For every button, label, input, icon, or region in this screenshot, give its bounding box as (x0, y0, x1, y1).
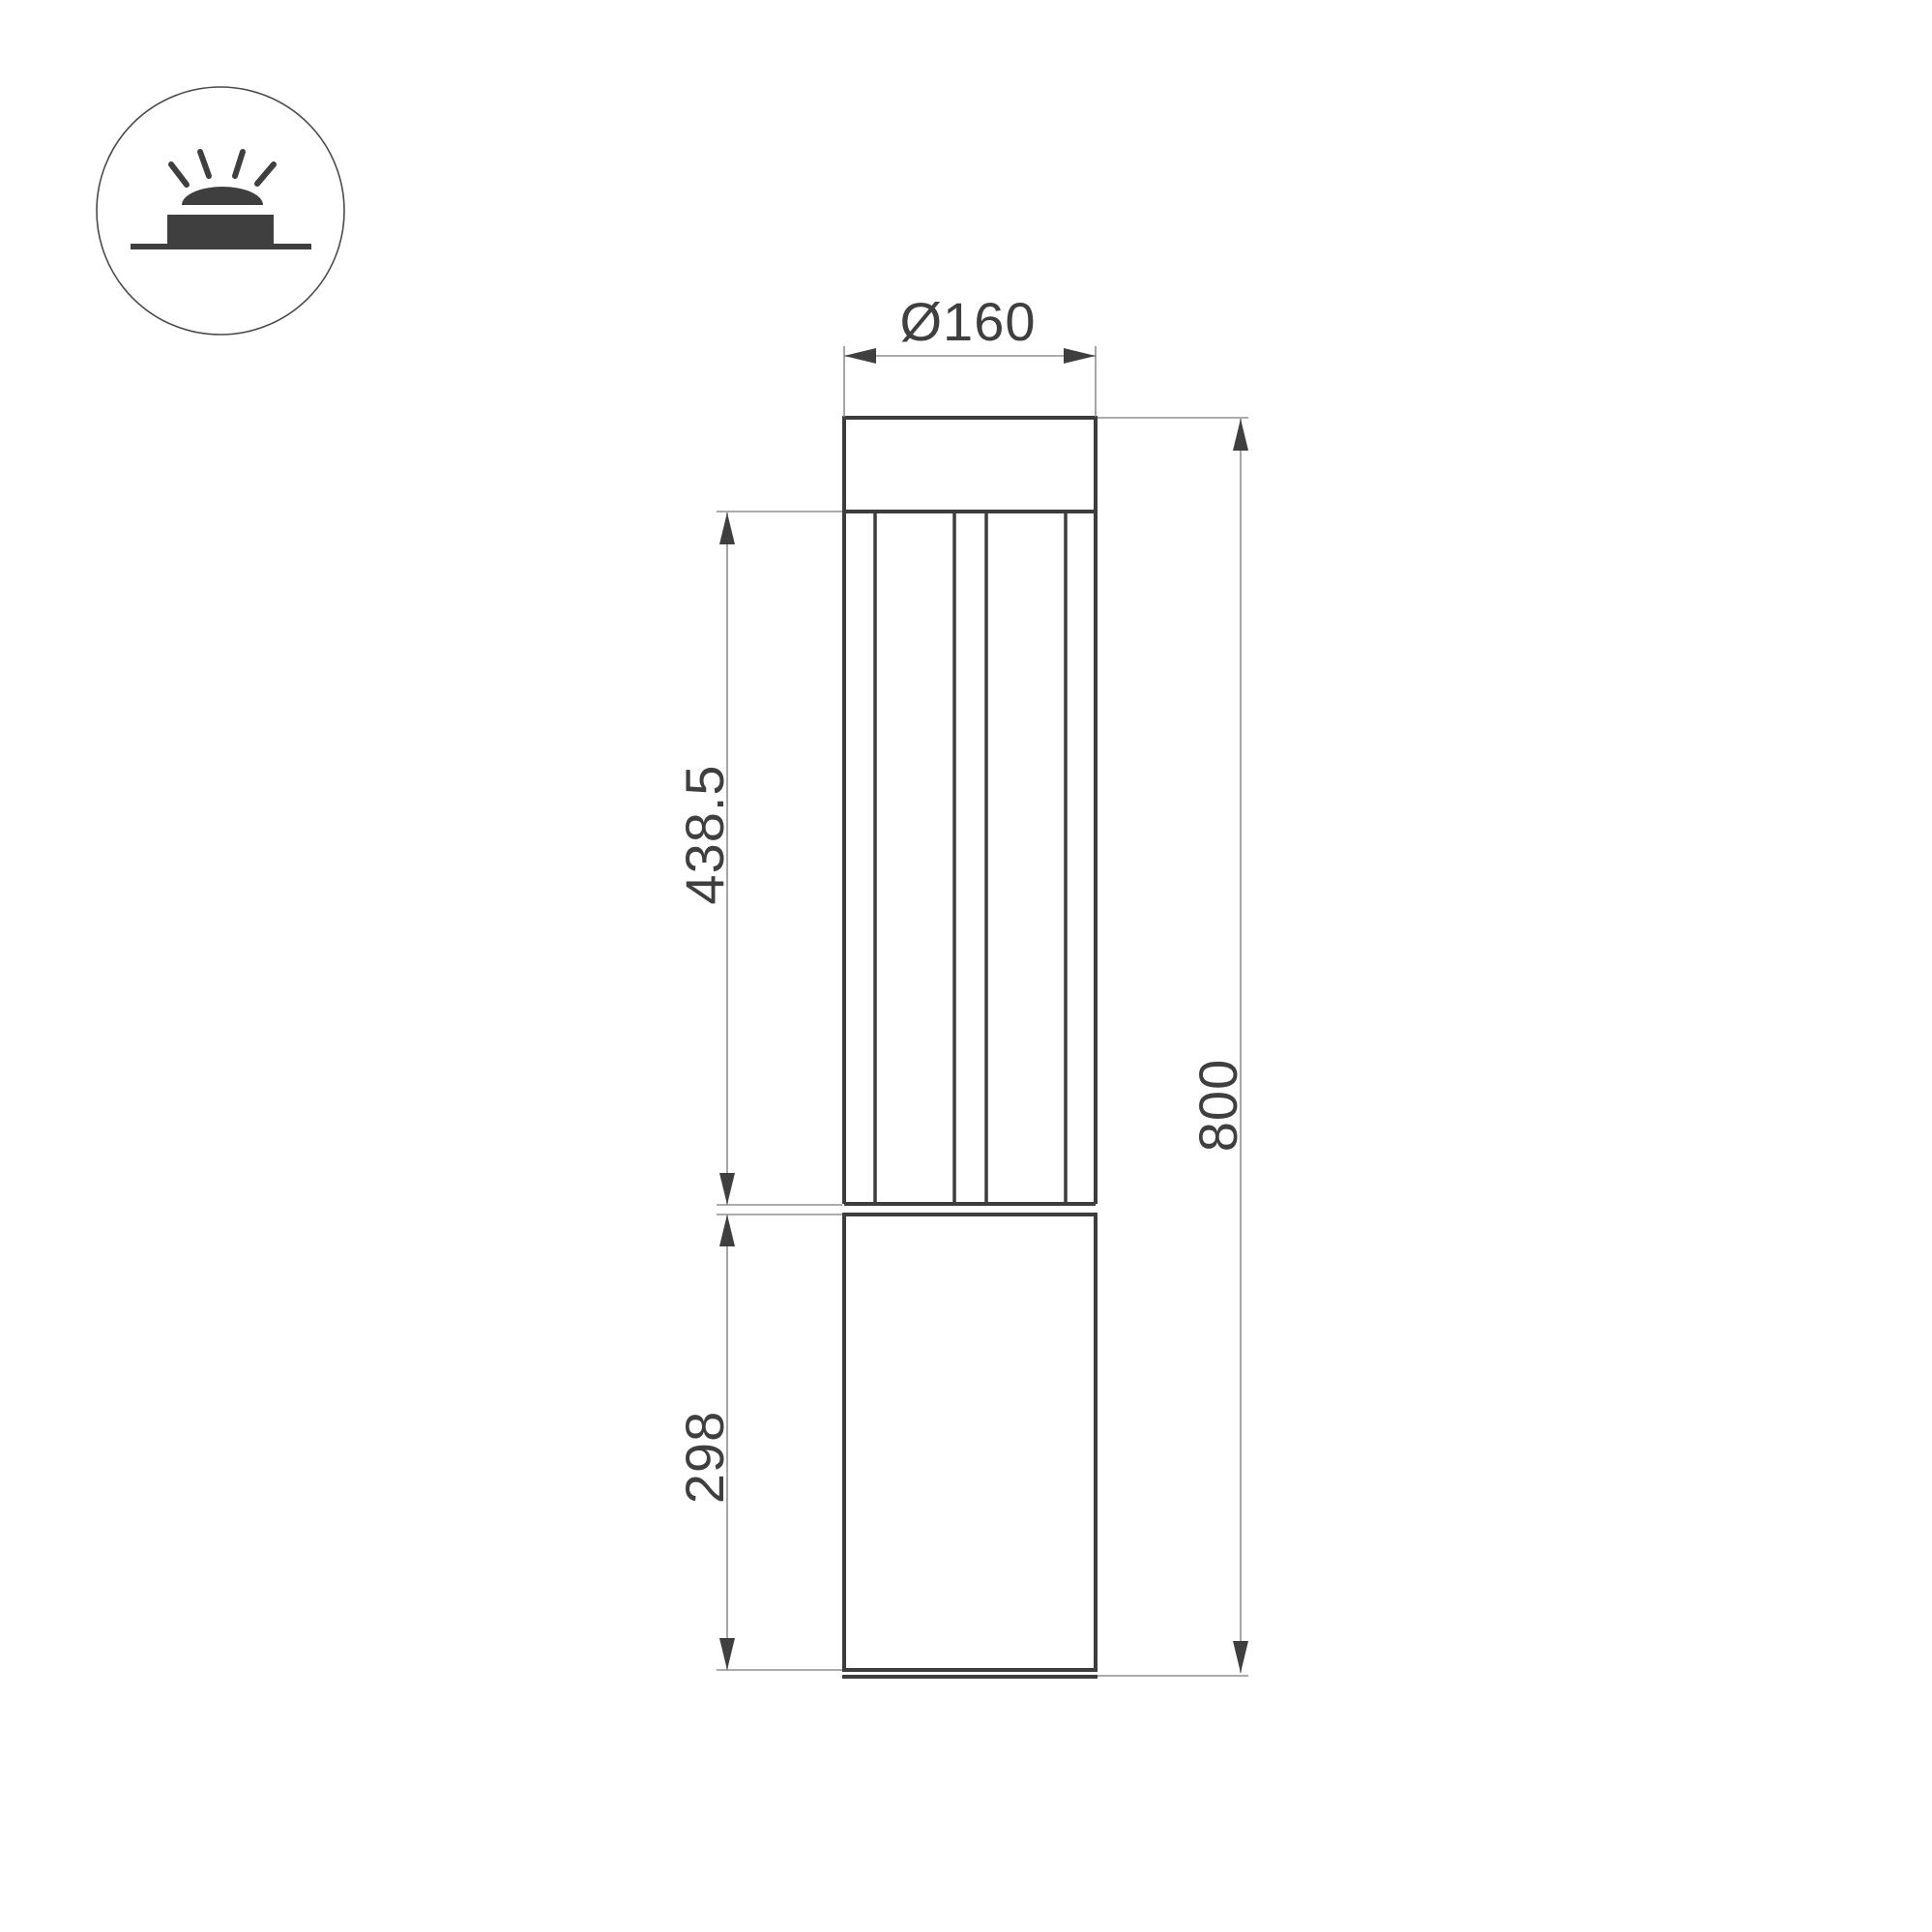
dim-lamp-label: 438.5 (674, 764, 735, 904)
dim-overall-label: 800 (1187, 1059, 1248, 1152)
dim-base-label: 298 (674, 1411, 735, 1504)
icon-badge-circle (97, 87, 344, 335)
dim-base-arrow-bottom (719, 1638, 735, 1670)
ground-line-icon (131, 244, 311, 249)
bollard-lamp-section (844, 512, 1096, 1204)
dim-diameter: Ø160 (844, 291, 1096, 417)
dim-lamp-arrow-bottom (719, 1173, 735, 1205)
dim-lamp-section-height: 438.5 (674, 512, 842, 1205)
product-icon-badge (97, 87, 344, 335)
dim-diameter-arrow-right (1064, 348, 1096, 364)
dim-base-arrow-top (719, 1215, 735, 1246)
bollard-base-body (844, 1215, 1096, 1670)
drawing-canvas: Ø160 438.5 298 (0, 0, 1932, 1932)
dim-diameter-arrow-left (844, 348, 876, 364)
dim-overall-arrow-top (1233, 419, 1248, 451)
dim-diameter-label: Ø160 (900, 291, 1037, 352)
dim-overall-height: 800 (1098, 418, 1248, 1676)
dim-lamp-arrow-top (719, 512, 735, 544)
bollard-top-cap (844, 418, 1096, 512)
dim-base-section-height: 298 (674, 1215, 842, 1670)
bollard-drawing (842, 418, 1098, 1677)
fixture-base-icon (167, 215, 274, 245)
bollard-base-section (842, 1215, 1098, 1677)
dim-overall-arrow-bottom (1233, 1641, 1248, 1673)
